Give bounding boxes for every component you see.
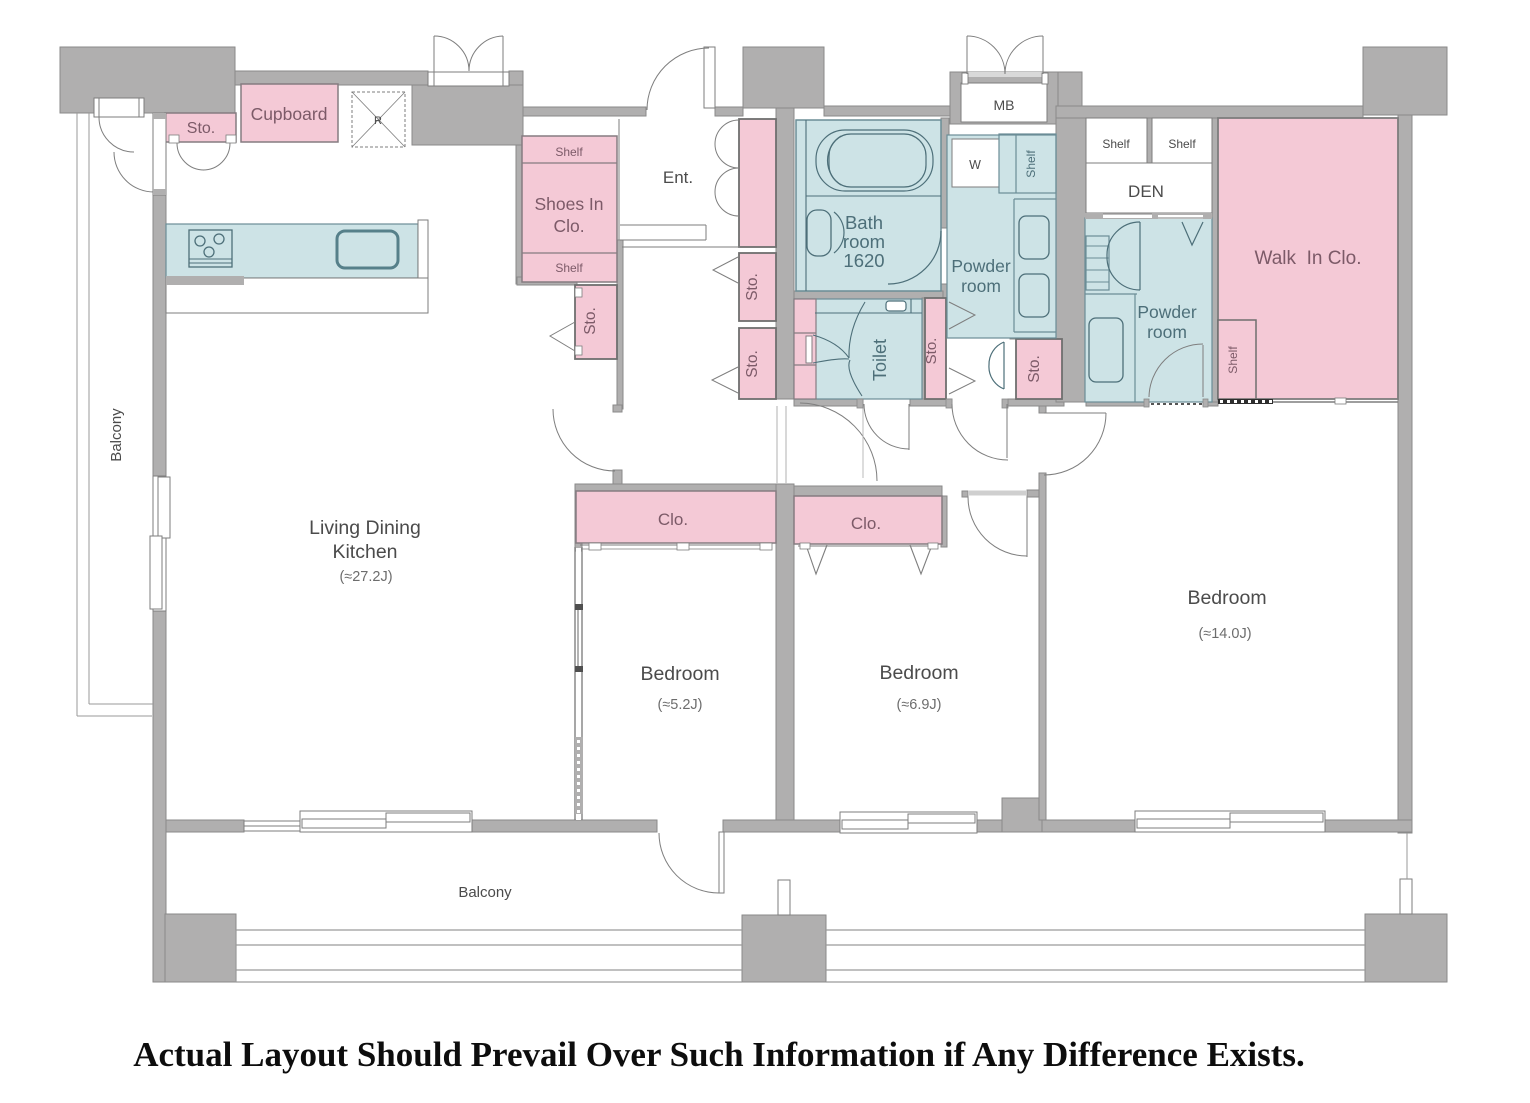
svg-text:Clo.: Clo. [658, 510, 688, 529]
svg-text:Living Dining: Living Dining [309, 517, 421, 539]
svg-text:R: R [374, 115, 382, 127]
svg-text:Shelf: Shelf [555, 261, 583, 275]
svg-text:Sto.: Sto. [744, 273, 761, 301]
svg-text:room: room [961, 276, 1001, 296]
svg-text:Bedroom: Bedroom [640, 663, 719, 685]
svg-text:Clo.: Clo. [553, 216, 584, 236]
svg-text:Bedroom: Bedroom [879, 662, 958, 684]
svg-text:Shoes In: Shoes In [534, 194, 603, 214]
svg-text:Shelf: Shelf [1102, 137, 1130, 151]
svg-text:(≈27.2J): (≈27.2J) [339, 569, 392, 585]
svg-text:Shelf: Shelf [1226, 346, 1240, 374]
svg-text:(≈6.9J): (≈6.9J) [896, 697, 941, 713]
svg-text:Sto.: Sto. [1026, 355, 1043, 383]
svg-text:room: room [1147, 322, 1187, 342]
svg-text:Bedroom: Bedroom [1187, 587, 1266, 609]
svg-text:Actual Layout Should Prevail O: Actual Layout Should Prevail Over Such I… [133, 1035, 1305, 1074]
svg-text:MB: MB [994, 97, 1015, 113]
svg-text:Sto.: Sto. [582, 307, 599, 335]
svg-text:Clo.: Clo. [851, 514, 881, 533]
svg-text:Powder: Powder [1137, 302, 1197, 322]
svg-text:Shelf: Shelf [555, 145, 583, 159]
svg-text:Ent.: Ent. [663, 168, 693, 187]
svg-text:Shelf: Shelf [1024, 150, 1038, 178]
svg-text:Kitchen: Kitchen [332, 541, 397, 563]
svg-text:1620: 1620 [843, 250, 884, 271]
svg-text:Toilet: Toilet [870, 339, 890, 381]
svg-text:DEN: DEN [1128, 182, 1164, 201]
svg-text:Powder: Powder [951, 256, 1011, 276]
svg-text:Balcony: Balcony [108, 408, 125, 462]
svg-text:(≈14.0J): (≈14.0J) [1198, 626, 1251, 642]
svg-text:Sto.: Sto. [187, 120, 215, 137]
svg-text:W: W [969, 158, 981, 172]
svg-text:Balcony: Balcony [458, 884, 512, 901]
svg-text:(≈5.2J): (≈5.2J) [657, 697, 702, 713]
svg-text:Walk In Clo.: Walk In Clo. [1255, 248, 1362, 269]
svg-text:Shelf: Shelf [1168, 137, 1196, 151]
svg-text:room: room [843, 231, 885, 252]
svg-text:Bath: Bath [845, 212, 883, 233]
svg-text:Sto.: Sto. [744, 350, 761, 378]
svg-text:Sto.: Sto. [923, 338, 940, 365]
svg-text:Cupboard: Cupboard [251, 104, 328, 124]
